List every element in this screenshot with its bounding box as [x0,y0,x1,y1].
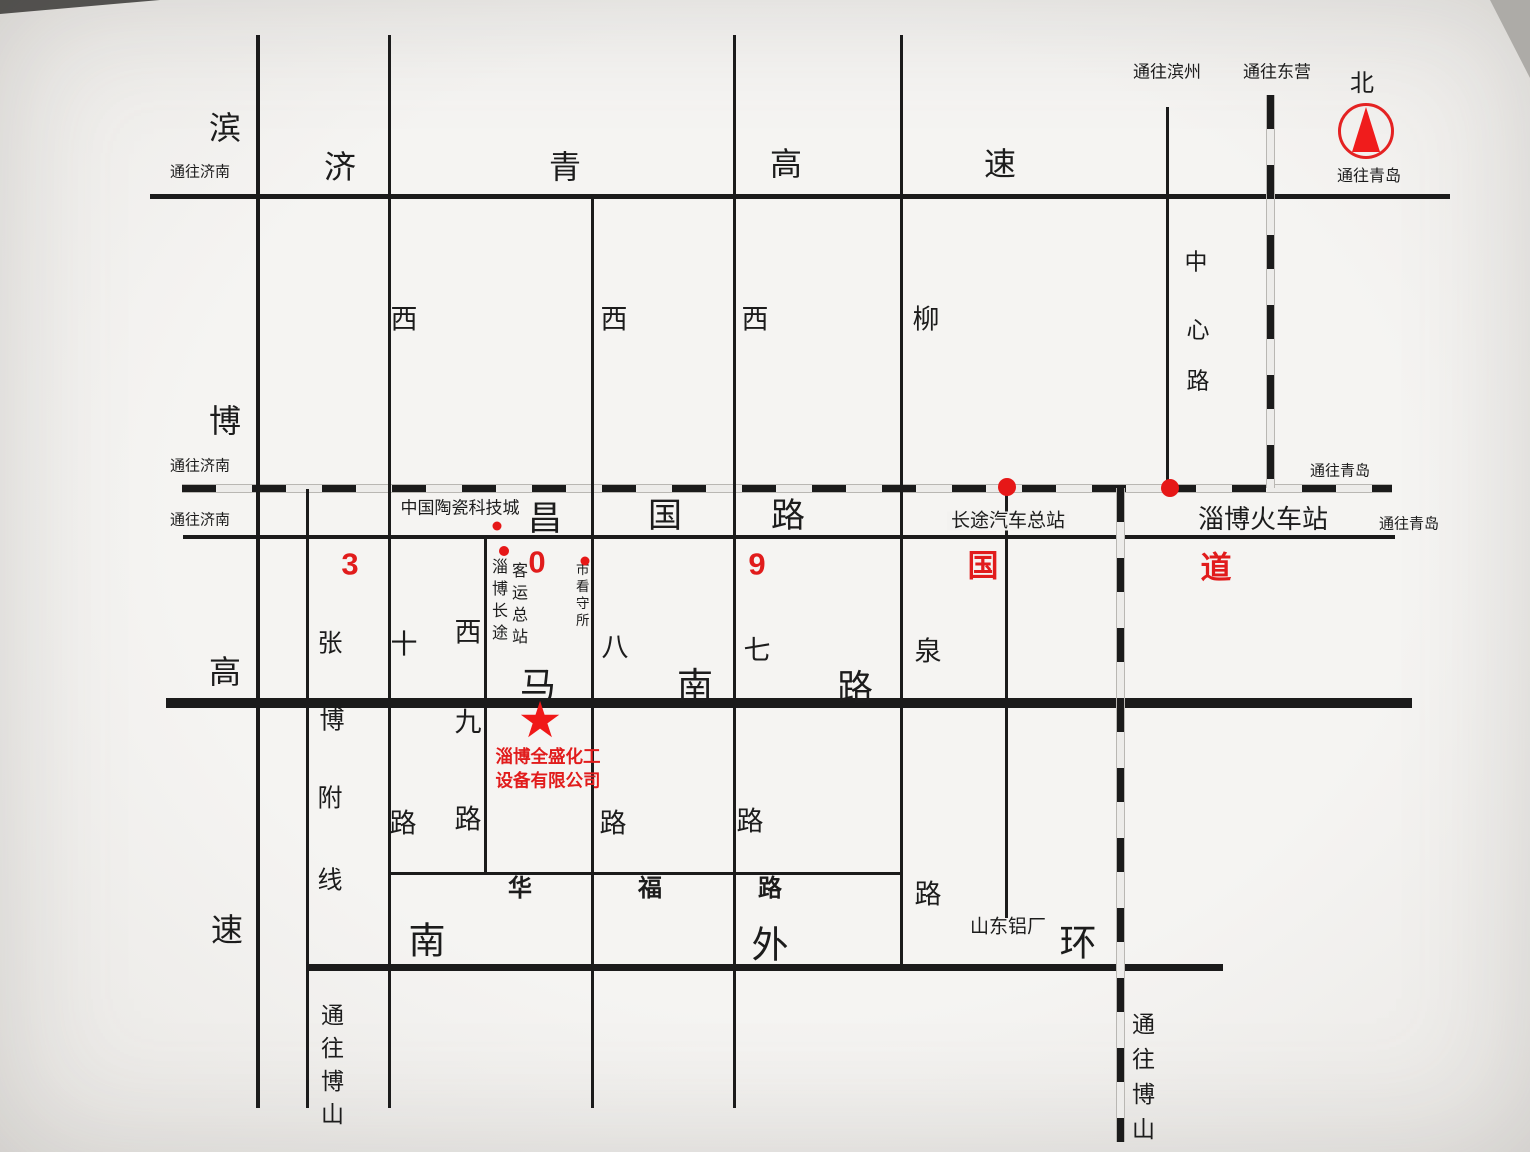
company-name-line2: 设备有限公司 [496,772,601,790]
road-binbo-expressway [256,35,260,1108]
road-label-jiqing-3: 速 [984,148,1016,180]
road-label-jiqing-2: 高 [770,148,802,180]
road-label-manan-1: 南 [677,668,713,704]
road-label-manan-2: 路 [837,670,873,706]
road-label-changguo-2: 路 [771,499,805,533]
road-label-huafu-1: 福 [638,877,662,901]
road-label-binbo-1: 博 [209,405,241,437]
road-label-xishi-2: 路 [390,811,417,838]
road-xiba [591,196,594,1108]
dot-long-distance-bus-station [998,478,1016,496]
dot-zibo-railway-station [1161,479,1179,497]
poi-bus-terminal-col-left: 淄博长途 [489,558,505,646]
road-label-xiqi-0: 西 [742,307,769,334]
route-309-label-3: 国 [968,551,999,582]
railway-east-west [182,484,1392,493]
photo-corner-top-right [1490,0,1530,78]
road-xishi [388,35,391,1108]
road-label-ring-2: 环 [1060,925,1097,962]
road-label-xishi-0: 西 [391,307,418,334]
north-label: 北 [1350,72,1374,96]
road-label-jiqing-0: 济 [324,151,356,183]
edge-label-to-qingdao-railway: 通往青岛 [1310,464,1370,479]
dot-detention-center [581,557,590,566]
route-309-label-0: 3 [341,549,358,580]
road-label-zhangbo-2: 附 [317,787,342,812]
company-star-icon: ★ [518,695,563,745]
company-name-line1: 淄博全盛化工 [496,748,601,766]
road-label-liuquan-2: 路 [915,882,942,909]
road-label-changguo-1: 国 [648,499,682,533]
road-label-huafu-2: 路 [758,877,782,901]
poi-ceramics-city: 中国陶瓷科技城 [401,500,520,517]
road-bus-station-spur [1005,489,1008,918]
road-label-xiba-2: 路 [600,811,627,838]
road-label-binbo-2: 高 [209,656,241,688]
road-label-ring-0: 南 [409,923,446,960]
road-label-binbo-3: 速 [211,914,243,946]
road-label-xijiu-0: 西 [455,620,482,647]
road-label-zhongxin-2: 路 [1187,370,1210,393]
road-label-xiqi-2: 路 [737,809,764,836]
road-label-ring-1: 外 [752,927,789,964]
edge-label-to-binzhou: 通往滨州 [1133,64,1201,81]
road-label-jiqing-1: 青 [549,151,581,183]
road-changguo [183,535,1395,539]
road-label-binbo-0: 滨 [209,112,241,144]
zibo-location-map: 滨 博 高 速 济 青 高 速 昌 国 路 马 南 路 南 外 环 华 福 路 … [0,0,1530,1152]
edge-label-to-jinan-railway: 通往济南 [170,459,230,474]
route-309-label-2: 9 [748,549,765,580]
road-xiqi [733,35,736,1108]
road-label-zhangbo-1: 博 [319,709,344,734]
road-label-xijiu-1: 九 [455,710,482,737]
road-label-changguo-0: 昌 [528,502,562,536]
road-label-zhangbo-3: 线 [317,869,342,894]
edge-label-to-qingdao-changguo: 通往青岛 [1379,517,1439,532]
photo-corner-top-left [0,0,160,14]
road-label-xijiu-2: 路 [455,807,482,834]
edge-label-to-qingdao-compass: 通往青岛 [1337,169,1401,185]
railway-south-boshan [1116,488,1125,1142]
road-jiqing-expressway [150,194,1450,199]
poi-shandong-aluminum: 山东铝厂 [970,918,1046,937]
road-label-xiba-1: 八 [602,635,629,662]
road-label-huafu-0: 华 [508,877,532,901]
edge-label-to-boshan-railway: 通往博山 [1130,1012,1153,1152]
road-label-zhongxin-1: 心 [1187,319,1210,342]
edge-label-to-dongying: 通往东营 [1243,64,1311,81]
road-liuquan [900,35,903,968]
road-label-xishi-1: 十 [391,632,418,659]
poi-detention-center: 市看守所 [574,562,588,630]
north-arrow-icon [1352,107,1380,152]
road-xijiu [484,537,487,874]
poi-bus-terminal-col-right: 客运总站 [509,562,525,650]
edge-label-to-boshan-west: 通往博山 [319,1003,342,1135]
route-309-label-4: 道 [1201,553,1232,584]
poi-long-distance-bus-station: 长途汽车总站 [947,512,1069,531]
road-label-zhongxin-0: 中 [1185,251,1208,274]
railway-north [1266,95,1275,488]
road-label-xiba-0: 西 [601,307,628,334]
edge-label-to-jinan-top: 通往济南 [170,165,230,180]
road-zhangbo-branch [306,489,309,1108]
road-label-xiqi-1: 七 [744,638,771,665]
road-manan [166,698,1412,708]
road-label-zhangbo-0: 张 [317,632,342,657]
route-309-label-1: 0 [528,547,545,578]
road-label-liuquan-1: 泉 [915,639,942,666]
road-label-liuquan-0: 柳 [913,307,940,334]
edge-label-to-jinan-changguo: 通往济南 [170,513,230,528]
dot-bus-terminal [499,546,509,556]
dot-ceramics-city [493,522,502,531]
road-zhongxin [1166,107,1169,489]
poi-zibo-railway-station: 淄博火车站 [1198,506,1328,532]
